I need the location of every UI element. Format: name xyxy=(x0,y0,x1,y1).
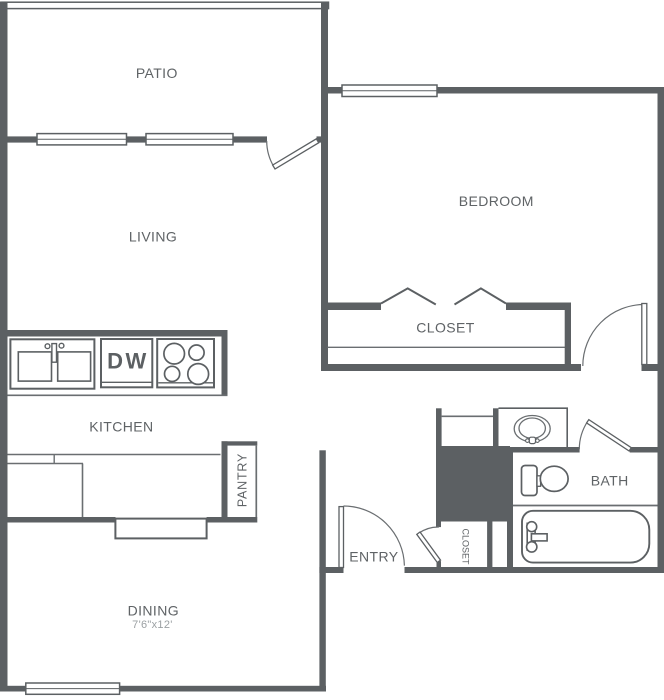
svg-text:PANTRY: PANTRY xyxy=(236,453,250,507)
svg-text:CLOSET: CLOSET xyxy=(416,319,474,335)
svg-text:DINING: DINING xyxy=(128,602,179,618)
svg-text:CLOSET: CLOSET xyxy=(461,528,471,565)
svg-text:PATIO: PATIO xyxy=(136,65,178,81)
svg-text:BEDROOM: BEDROOM xyxy=(459,193,534,209)
svg-text:DW: DW xyxy=(107,349,149,374)
svg-text:KITCHEN: KITCHEN xyxy=(89,419,153,435)
svg-text:BATH: BATH xyxy=(591,473,629,489)
svg-text:ENTRY: ENTRY xyxy=(349,549,398,565)
svg-text:7'6"x12': 7'6"x12' xyxy=(132,619,172,631)
svg-text:LIVING: LIVING xyxy=(129,228,177,244)
